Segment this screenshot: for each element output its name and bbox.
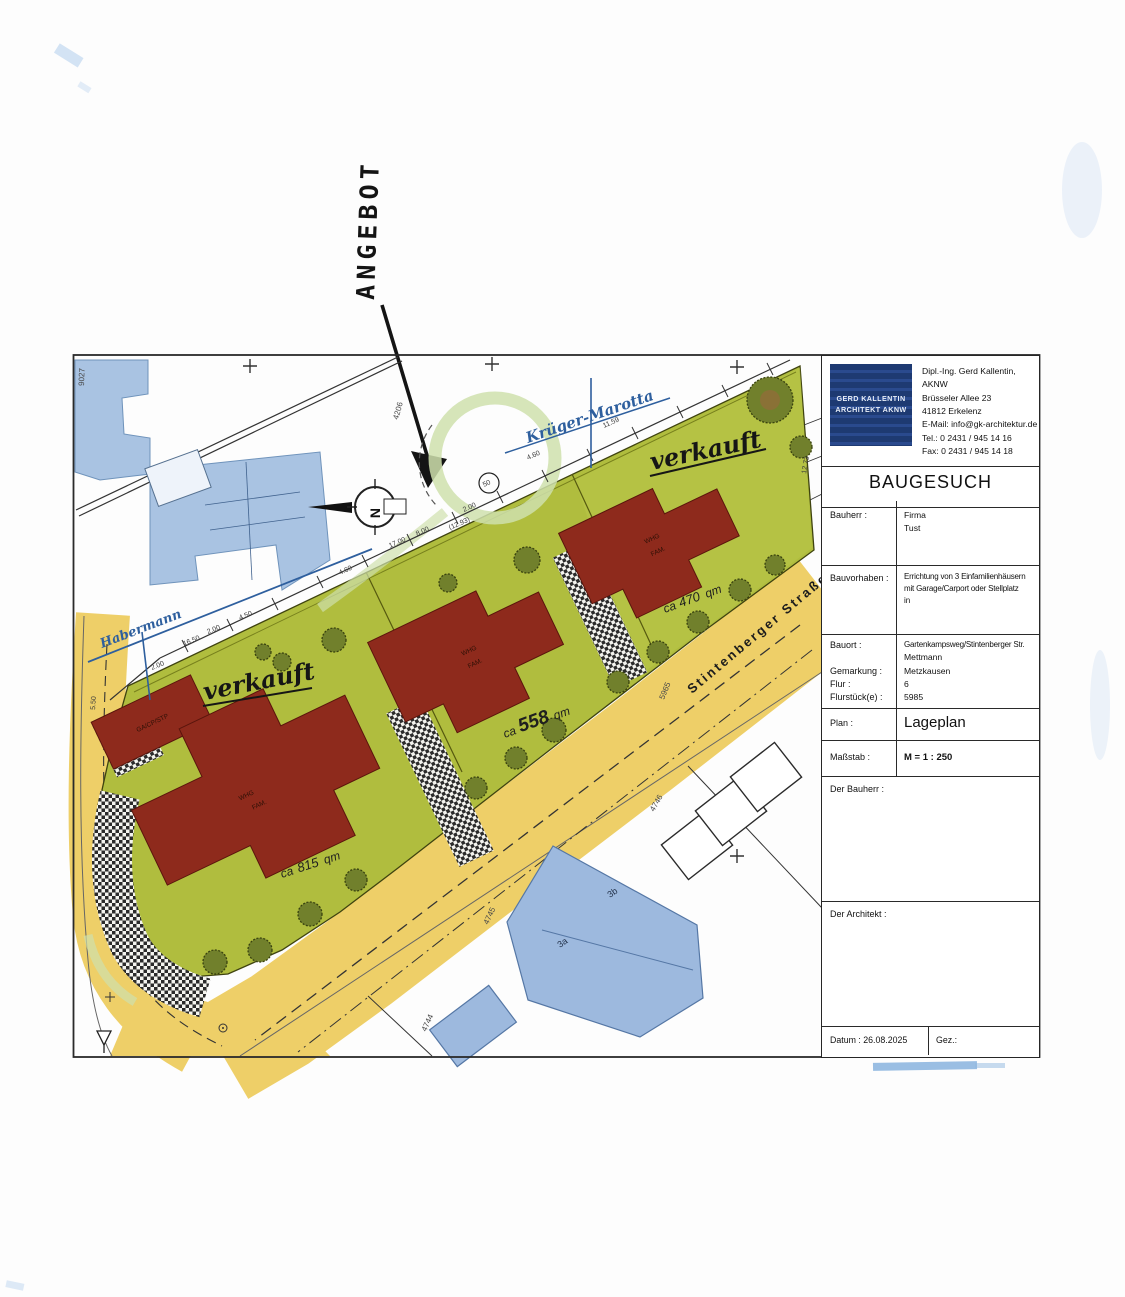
svg-text:4.60: 4.60 (338, 565, 353, 577)
flur-label: Flur : (830, 679, 851, 689)
logo-line-1: GERD KALLENTIN (836, 394, 905, 405)
svg-text:4.50: 4.50 (238, 610, 253, 622)
architect-email: E-Mail: info@gk-architektur.de (922, 418, 1039, 431)
compass-letter: N (367, 508, 383, 518)
row-datum: Datum : 26.08.2025 Gez.: (822, 1026, 1039, 1055)
architect-header: GERD KALLENTIN ARCHITEKT AKNW Dipl.-Ing.… (822, 356, 1039, 467)
plan-label: Plan : (830, 718, 853, 728)
flurstueck-value: 5985 (904, 692, 923, 702)
architect-fax: Fax: 0 2431 / 945 14 18 (922, 445, 1039, 458)
massstab-label: Maßstab : (830, 752, 870, 762)
title-block: GERD KALLENTIN ARCHITEKT AKNW Dipl.-Ing.… (821, 355, 1040, 1058)
bauort-label: Bauort : (830, 640, 862, 650)
gemarkung-label: Gemarkung : (830, 666, 882, 676)
gez-label: Gez.: (936, 1035, 957, 1045)
scanned-site-plan-page: ANGEBOT (0, 0, 1125, 1297)
sign-bauherr-label: Der Bauherr : (830, 784, 884, 794)
row-bauort: Bauort : Gemarkung : Flur : Flurstück(e)… (822, 634, 1039, 709)
architect-tel: Tel.: 0 2431 / 945 14 16 (922, 432, 1039, 445)
architect-city: 41812 Erkelenz (922, 405, 1039, 418)
plan-value: Lageplan (904, 714, 966, 731)
architect-name: Dipl.-Ing. Gerd Kallentin, AKNW (922, 365, 1039, 392)
circled-parcel: 50 (479, 473, 499, 493)
svg-text:2.00: 2.00 (206, 624, 221, 636)
architect-contact: Dipl.-Ing. Gerd Kallentin, AKNW Brüssele… (922, 365, 1039, 458)
massstab-value: M = 1 : 250 (904, 752, 952, 763)
svg-text:16.50: 16.50 (182, 635, 201, 648)
gemarkung-value: Metzkausen (904, 666, 950, 676)
datum-value: Datum : 26.08.2025 (830, 1035, 907, 1045)
svg-text:5.50: 5.50 (90, 696, 98, 710)
circled-parcel-number: 50 (482, 479, 492, 489)
existing-buildings-topleft (75, 360, 330, 590)
row-bauherr: Bauherr : Firma Tust (822, 501, 1039, 566)
bauherr-value-2: Tust (904, 523, 920, 533)
flur-value: 6 (904, 679, 909, 689)
row-plan: Plan : Lageplan (822, 708, 1039, 741)
architect-logo: GERD KALLENTIN ARCHITEKT AKNW (830, 364, 912, 446)
bauvorhaben-value-3: in (904, 596, 910, 605)
bauherr-value-1: Firma (904, 510, 926, 520)
flurstueck-label: Flurstück(e) : (830, 692, 883, 702)
bauvorhaben-value-1: Errichtung von 3 Einfamilienhäusern (904, 572, 1026, 581)
sign-architekt-label: Der Architekt : (830, 909, 887, 919)
svg-text:9027: 9027 (77, 367, 87, 386)
bauort-value-1: Gartenkampsweg/Stintenberger Str. (904, 640, 1025, 649)
angebot-text: ANGEBOT (351, 159, 385, 300)
bauvorhaben-label: Bauvorhaben : (830, 573, 889, 583)
svg-text:4206: 4206 (391, 400, 405, 420)
bauherr-label: Bauherr : (830, 510, 867, 520)
svg-text:4.60: 4.60 (526, 450, 541, 462)
logo-line-2: ARCHITEKT AKNW (835, 405, 906, 416)
existing-building-bottom (507, 846, 703, 1037)
row-sign-architekt: Der Architekt : (822, 901, 1039, 1027)
architect-street: Brüsseler Allee 23 (922, 392, 1039, 405)
row-massstab: Maßstab : M = 1 : 250 (822, 740, 1039, 777)
bauvorhaben-value-2: mit Garage/Carport oder Stellplatz (904, 584, 1019, 593)
row-bauvorhaben: Bauvorhaben : Errichtung von 3 Einfamili… (822, 565, 1039, 635)
bauort-value-2: Mettmann (904, 652, 942, 662)
angebot-arrow-shaft (382, 305, 429, 462)
row-sign-bauherr: Der Bauherr : (822, 776, 1039, 902)
